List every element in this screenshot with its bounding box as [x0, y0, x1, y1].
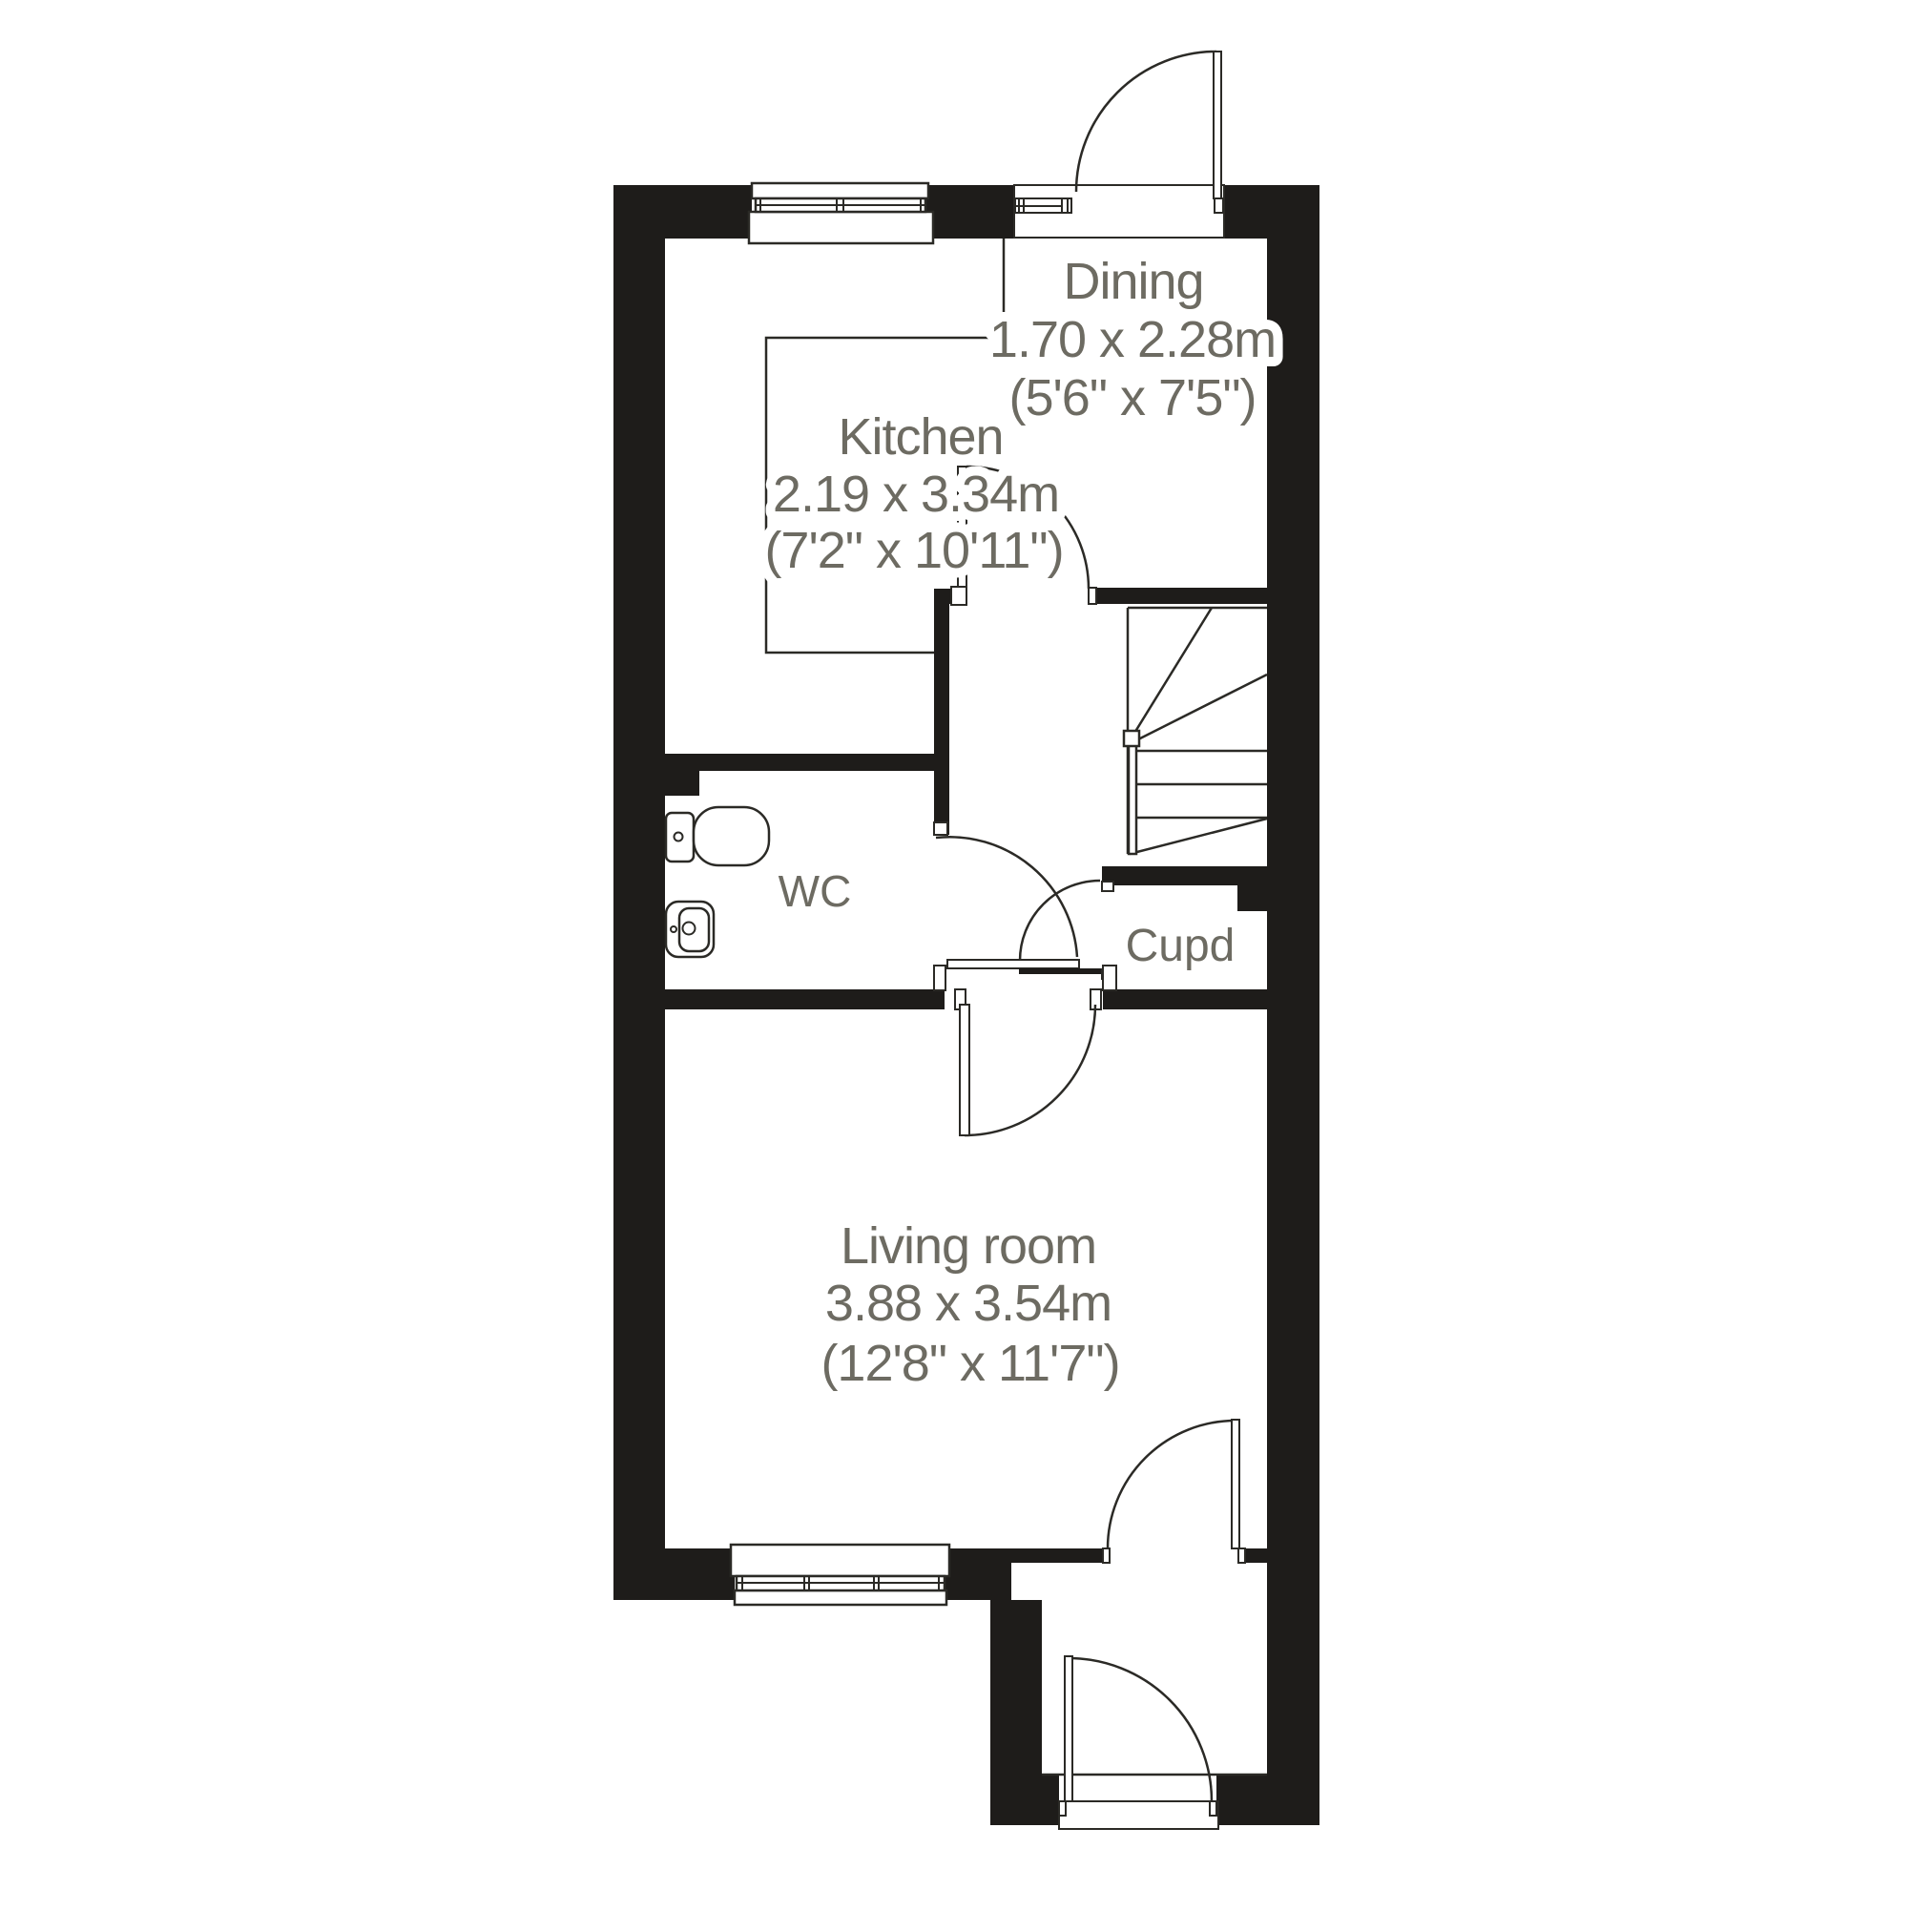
left-wall: [613, 185, 665, 1600]
living-top-wall-right: [1103, 989, 1267, 1009]
front-door-threshold: [1059, 1801, 1218, 1829]
dining-size-metric: 1.70 x 2.28m: [989, 311, 1276, 368]
kitchen-window-outer-sill: [752, 183, 928, 198]
dining-size-imperial: (5'6" x 7'5"): [1008, 369, 1256, 426]
cupboard-label: Cupd: [1126, 921, 1236, 971]
kitchen-hall-wall: [934, 589, 949, 835]
front-door-leaf: [1065, 1656, 1072, 1801]
bottom-wall-left-segment: [613, 1548, 735, 1600]
wc-door-arc: [936, 837, 1077, 957]
sink-icon: [666, 902, 714, 957]
back-door-arc: [1108, 1421, 1236, 1548]
porch-front-wall-left: [1042, 1775, 1059, 1825]
wc-label: WC: [779, 866, 852, 916]
cupboard-corner-block: [1237, 866, 1267, 911]
living-room-label: Living room: [841, 1217, 1096, 1275]
top-wall-mid-segment: [925, 185, 1015, 239]
wc-door-leaf: [947, 960, 1079, 968]
back-door-leaf: [1232, 1420, 1239, 1548]
back-door: [1103, 1420, 1245, 1563]
living-door-jamb-upper-left: [934, 966, 945, 990]
entry-door-jamb: [1215, 198, 1223, 213]
porch-top-strip-right: [1245, 1548, 1267, 1563]
stair-break-line: [1130, 819, 1267, 854]
entry-door-leaf: [1214, 52, 1221, 198]
kitchen-door-jamb-left: [951, 587, 966, 605]
front-door-arc: [1069, 1658, 1212, 1801]
floor-plan-page: Dining 1.70 x 2.28m (5'6" x 7'5") Kitche…: [0, 0, 1932, 1932]
porch-left-wall: [990, 1600, 1042, 1825]
front-door-jamb-right: [1210, 1801, 1216, 1816]
bottom-wall-right-segment: [943, 1548, 1011, 1600]
kitchen-size-imperial: (7'2" x 10'11"): [764, 522, 1063, 579]
right-wall: [1267, 185, 1319, 1825]
cupboard-door-arc: [1020, 881, 1100, 961]
toilet-bowl: [694, 807, 769, 865]
entry-door: [1014, 52, 1224, 238]
wc-top-wall: [665, 754, 935, 771]
living-window-inner-sill: [731, 1545, 949, 1576]
floor-plan-drawing: Dining 1.70 x 2.28m (5'6" x 7'5") Kitche…: [0, 0, 1932, 1932]
stairs: [1124, 608, 1267, 854]
kitchen-size-metric: 2.19 x 3.34m: [773, 466, 1059, 523]
cupboard-door-leaf: [1019, 968, 1114, 974]
entry-door-arc: [1076, 52, 1216, 192]
entry-threshold: [1014, 185, 1224, 238]
living-top-wall-left: [665, 989, 945, 1009]
living-room-window: [731, 1545, 949, 1605]
living-room-size-metric: 3.88 x 3.54m: [825, 1275, 1111, 1332]
dining-label: Dining: [1063, 253, 1203, 310]
back-door-jamb-right: [1238, 1548, 1245, 1563]
living-room-door: [934, 966, 1116, 1135]
back-door-jamb-left: [1103, 1548, 1110, 1563]
living-door-jamb-upper-right: [1103, 966, 1116, 990]
dining-bottom-wall: [1094, 588, 1267, 604]
wc-door: [936, 837, 1079, 968]
kitchen-window: [749, 183, 933, 243]
kitchen-wall-end-cap: [934, 822, 947, 835]
living-window-outer-sill: [735, 1590, 946, 1605]
kitchen-label: Kitchen: [838, 408, 1003, 466]
porch-top-strip-left: [1011, 1548, 1103, 1563]
kitchen-window-inner-sill: [749, 212, 933, 243]
living-room-size-imperial: (12'8" x 11'7"): [821, 1335, 1119, 1392]
stair-handrail: [1129, 738, 1136, 854]
front-door-jamb-left: [1059, 1801, 1066, 1816]
living-door-leaf: [960, 1005, 969, 1135]
toilet-icon: [666, 807, 769, 865]
stair-newel-post: [1124, 731, 1139, 746]
living-door-arc: [965, 1005, 1095, 1135]
stair-winder-2: [1136, 675, 1267, 740]
toilet-cistern: [666, 813, 694, 862]
kitchen-door-jamb-right: [1089, 588, 1096, 604]
room-labels: Dining 1.70 x 2.28m (5'6" x 7'5") Kitche…: [764, 253, 1276, 1392]
wc-corner-duct: [665, 771, 699, 796]
cupboard-wall-jamb: [1102, 882, 1113, 891]
porch-front-wall-right: [1216, 1775, 1267, 1825]
stair-winder-1: [1133, 608, 1212, 735]
